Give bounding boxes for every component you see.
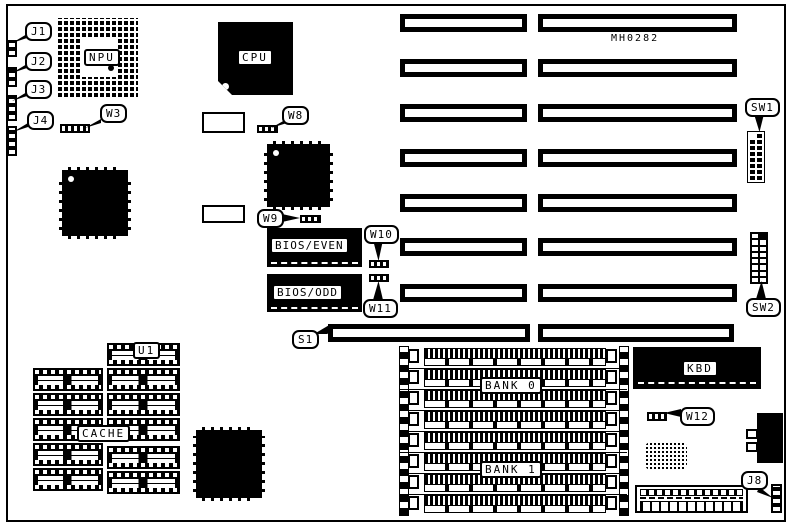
simm-row-body-5: [424, 442, 606, 450]
sw1-position-3[interactable]: [750, 140, 755, 144]
simm-clip-left-6: [408, 454, 419, 468]
din-tab-1: [746, 429, 758, 439]
expansion-slot-long-5: [538, 194, 737, 212]
din-tab-2: [746, 442, 758, 452]
callout-j8: J8: [741, 471, 768, 490]
sw1-position-13[interactable]: [750, 170, 755, 174]
callout-j1: J1: [25, 22, 52, 41]
sw1-position-9[interactable]: [750, 158, 755, 162]
sw2-position-9[interactable]: [752, 259, 758, 263]
sw2-position-1[interactable]: [752, 234, 758, 238]
kbd-label: KBD: [682, 360, 718, 377]
cache-chip-right-6: [107, 471, 180, 494]
sw1-position-10[interactable]: [757, 158, 762, 162]
expansion-slot-short-3: [400, 104, 527, 122]
cache-chip-left-4: [33, 443, 103, 466]
sw1-position-4[interactable]: [757, 140, 762, 144]
simm-row-body-7: [424, 484, 606, 492]
sw2-position-15[interactable]: [752, 278, 758, 282]
expansion-slot-short-1: [400, 14, 527, 32]
w3-jumper[interactable]: [60, 124, 90, 133]
simm-clip-right-5: [606, 433, 617, 447]
simm-clip-right-3: [606, 391, 617, 405]
simm-row-body-8: [424, 505, 606, 513]
cache-label: CACHE: [77, 425, 130, 442]
sw1-position-8[interactable]: [757, 152, 762, 156]
s1-slot-left: [328, 324, 530, 342]
oscillator-socket-1: [202, 112, 245, 133]
sw1-position-5[interactable]: [750, 146, 755, 150]
sw2-dip-switch[interactable]: [750, 232, 768, 284]
simm-clip-left-8: [408, 496, 419, 510]
qfp-pin1-dot: [273, 150, 279, 156]
sw1-position-6[interactable]: [757, 146, 762, 150]
callout-j3: J3: [25, 80, 52, 99]
expansion-slot-long-4: [538, 149, 737, 167]
w9-jumper[interactable]: [300, 215, 321, 223]
callout-sw1: SW1: [745, 98, 780, 117]
sw1-dip-switch[interactable]: [747, 131, 765, 183]
chip-stripe: [38, 401, 98, 405]
cache-chip-left-2: [33, 393, 103, 416]
bios-even-pins: [271, 262, 358, 264]
sw2-position-8[interactable]: [760, 253, 766, 257]
simm-row-body-1: [424, 358, 606, 366]
simm-clip-left-4: [408, 412, 419, 426]
simm-clip-left-7: [408, 475, 419, 489]
simm-clip-right-2: [606, 370, 617, 384]
sw1-position-11[interactable]: [750, 164, 755, 168]
sw2-position-3[interactable]: [752, 240, 758, 244]
w12-jumper[interactable]: [647, 412, 667, 421]
sw2-position-11[interactable]: [752, 265, 758, 269]
simm-clip-left-3: [408, 391, 419, 405]
callout-w8: W8: [282, 106, 309, 125]
bank1-label: BANK 1: [480, 461, 542, 478]
expansion-slot-short-4: [400, 149, 527, 167]
callout-w3: W3: [100, 104, 127, 123]
simm-clip-right-8: [606, 496, 617, 510]
chip-stripe: [112, 406, 175, 410]
j2-jumper[interactable]: [7, 67, 17, 87]
sw1-position-1[interactable]: [750, 134, 755, 138]
simm-clip-left-5: [408, 433, 419, 447]
sw2-position-10[interactable]: [760, 259, 766, 263]
chip-stripe: [112, 376, 175, 380]
chip-stripe: [112, 454, 175, 458]
sw1-position-12[interactable]: [757, 164, 762, 168]
expansion-slot-short-5: [400, 194, 527, 212]
callout-sw2: SW2: [746, 298, 781, 317]
expansion-slot-short-6: [400, 238, 527, 256]
connector-top-pins: [640, 489, 743, 496]
callout-w11: W11: [363, 299, 398, 318]
qfp-chip-left: [62, 170, 128, 236]
simm-clip-right-1: [606, 349, 617, 363]
simm-clip-right-6: [606, 454, 617, 468]
sw2-position-16[interactable]: [760, 278, 766, 282]
sw2-position-12[interactable]: [760, 265, 766, 269]
expansion-slot-short-2: [400, 59, 527, 77]
bios-odd-pins: [271, 307, 358, 309]
connector-bottom-pins: [640, 501, 743, 512]
sw1-position-2[interactable]: [757, 134, 762, 138]
cache-chip-left-1: [33, 368, 103, 391]
bios-odd-label: BIOS/ODD: [272, 284, 343, 301]
oscillator-socket-2: [202, 205, 245, 223]
cpu-label: CPU: [237, 49, 273, 66]
cache-chip-left-5: [33, 468, 103, 491]
connector-divider: [640, 497, 743, 499]
qfp-pins: [196, 430, 262, 498]
chip-stripe: [38, 376, 98, 380]
simm-clip-right-4: [606, 412, 617, 426]
qfp-chip-bottom: [196, 430, 262, 498]
sw2-position-14[interactable]: [760, 272, 766, 276]
chip-stripe: [112, 381, 175, 385]
u1-label: U1: [133, 342, 160, 359]
w10-jumper[interactable]: [369, 260, 389, 268]
pad-grid-component: [645, 442, 687, 470]
expansion-slot-long-1: [538, 14, 737, 32]
chip-stripe: [38, 456, 98, 460]
w11-jumper[interactable]: [369, 274, 389, 282]
sw1-position-16[interactable]: [757, 176, 762, 180]
simm-clip-left-1: [408, 349, 419, 363]
motherboard-diagram: NPU CPU BIOS/EVEN BIOS/ODD KBD U1 CACHE …: [0, 0, 791, 527]
callout-j4: J4: [27, 111, 54, 130]
expansion-slot-long-7: [538, 284, 737, 302]
callout-s1: S1: [292, 330, 319, 349]
chip-stripe: [112, 484, 175, 488]
expansion-slot-short-7: [400, 284, 527, 302]
sw2-position-7[interactable]: [752, 253, 758, 257]
kbd-pins: [638, 382, 756, 384]
sw1-position-14[interactable]: [757, 170, 762, 174]
expansion-slot-long-2: [538, 59, 737, 77]
chip-stripe: [38, 481, 98, 485]
sw1-position-15[interactable]: [750, 176, 755, 180]
simm-row-body-3: [424, 400, 606, 408]
simm-clip-right-7: [606, 475, 617, 489]
bank0-label: BANK 0: [480, 377, 542, 394]
board-id-text: MH0282: [611, 33, 659, 44]
sw2-position-2[interactable]: [760, 234, 766, 238]
callout-w12: W12: [680, 407, 715, 426]
sw2-position-4[interactable]: [760, 240, 766, 244]
npu-label: NPU: [84, 49, 120, 66]
chip-stripe: [112, 459, 175, 463]
chip-stripe: [38, 406, 98, 410]
bios-even-label: BIOS/EVEN: [270, 237, 349, 254]
s1-slot-right: [538, 324, 734, 342]
chip-stripe: [38, 451, 98, 455]
simm-row-body-4: [424, 421, 606, 429]
chip-stripe: [38, 476, 98, 480]
sw2-position-13[interactable]: [752, 272, 758, 276]
expansion-slot-long-3: [538, 104, 737, 122]
j1-jumper[interactable]: [7, 40, 17, 57]
chip-stripe: [112, 401, 175, 405]
callout-j2: J2: [25, 52, 52, 71]
bottom-edge-connector: [635, 485, 748, 513]
qfp-pin1-dot: [68, 176, 74, 182]
chip-stripe: [112, 479, 175, 483]
cache-chip-right-5: [107, 446, 180, 469]
keyboard-din-connector: [757, 413, 783, 463]
cache-chip-right-3: [107, 393, 180, 416]
sw2-position-5[interactable]: [752, 247, 758, 251]
j8-connector[interactable]: [771, 484, 782, 513]
expansion-slot-long-6: [538, 238, 737, 256]
sw1-position-7[interactable]: [750, 152, 755, 156]
sw2-position-6[interactable]: [760, 247, 766, 251]
callout-w9: W9: [257, 209, 284, 228]
cache-chip-right-2: [107, 368, 180, 391]
callout-w10: W10: [364, 225, 399, 244]
chip-stripe: [38, 381, 98, 385]
simm-clip-left-2: [408, 370, 419, 384]
qfp-chip-mid: [267, 144, 330, 207]
